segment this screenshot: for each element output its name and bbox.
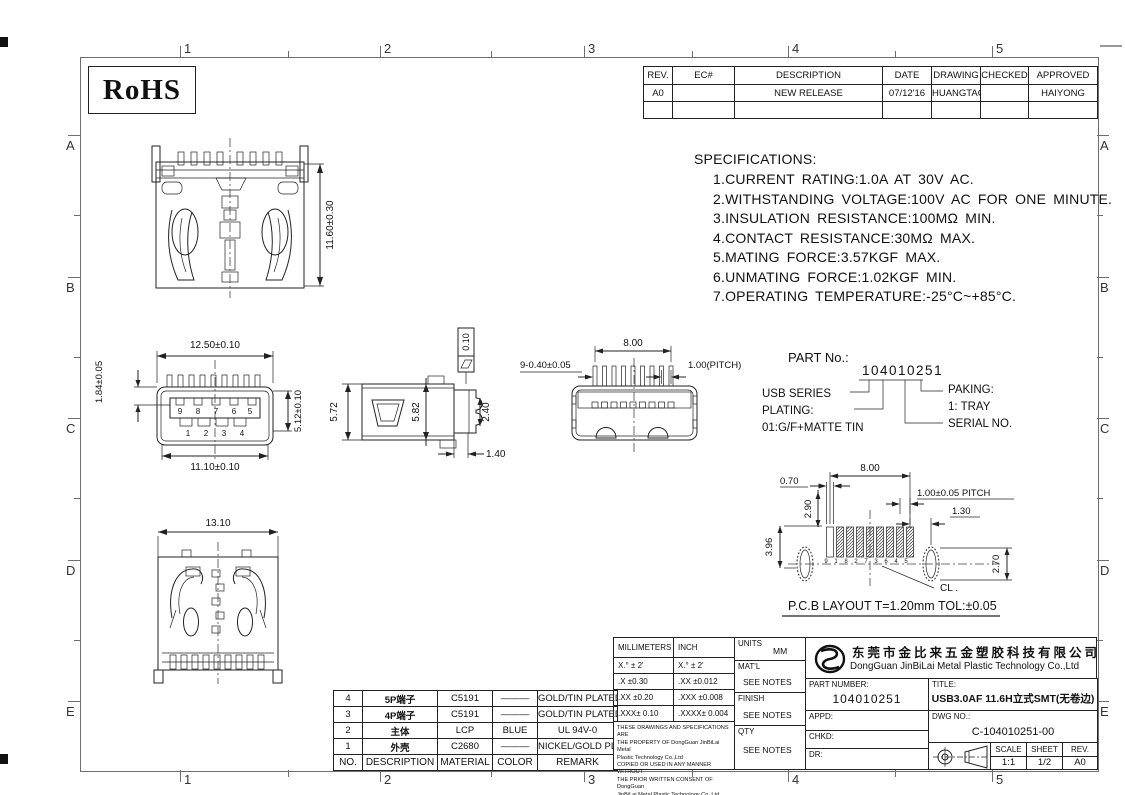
bom-remark: NICKEL/GOLD PLATED <box>538 739 618 755</box>
pcb-pin-number: 6 <box>884 559 888 565</box>
bom-color: ——— <box>493 707 538 723</box>
zone-row-a-right: A <box>1100 138 1109 153</box>
bom-color: BLUE <box>493 723 538 739</box>
tick <box>288 770 289 777</box>
scale-value-cell: 1:1 <box>990 756 1027 770</box>
rohs-label: RoHS <box>103 74 181 107</box>
side-flatness-dim: 0.10 <box>461 333 471 351</box>
bom-remark: GOLD/TIN PLATED <box>538 707 618 723</box>
approved-col-header: APPROVED <box>1029 67 1098 85</box>
mating-face-view-drawing: 9 8 7 6 5 1 2 3 4 12.50±0.10 11.10±0.10 … <box>92 330 312 475</box>
spec-item: 5.MATING FORCE:3.57KGF MAX. <box>713 248 1112 268</box>
tick <box>74 498 80 499</box>
title-cell: TITLE: USB3.0AF 11.6H立式SMT(无卷边) <box>928 678 1098 711</box>
chkd-cell: CHKD: <box>805 730 929 749</box>
spec-item: 2.WITHSTANDING VOLTAGE:100V AC FOR ONE M… <box>713 190 1112 210</box>
bom-no: 4 <box>334 691 363 707</box>
company-banner: 东莞市金比来五金塑胶科技有限公司 DongGuan JinBiLai Metal… <box>805 637 1097 679</box>
tick <box>1097 135 1109 136</box>
tick <box>895 770 896 777</box>
rev-header-cell: REV. <box>1062 742 1098 757</box>
tolerance-table: MILLIMETERS INCH X.° ± 2'X.° ± 2' .X ±0.… <box>613 637 735 722</box>
spec-item: 4.CONTACT RESISTANCE:30MΩ MAX. <box>713 229 1112 249</box>
tick <box>68 701 80 702</box>
part-no-leader-lines <box>755 345 1065 445</box>
tick <box>1097 418 1109 419</box>
pcb-130-dim: 1.30 <box>952 506 971 517</box>
zone-col-1-bottom: 1 <box>184 772 191 787</box>
date-value: 07/12'16 <box>883 85 932 102</box>
bom-header-no: NO. <box>334 755 363 771</box>
scale-value: 1:1 <box>991 757 1026 768</box>
bom-header-material: MATERIAL <box>438 755 493 771</box>
side-dim-582: 5.82 <box>411 402 422 422</box>
title-value: USB3.0AF 11.6H立式SMT(无卷边) <box>929 691 1097 706</box>
pcb-pin-number: 1 <box>834 559 838 565</box>
spec-item: 3.INSULATION RESISTANCE:100MΩ MIN. <box>713 209 1112 229</box>
company-name-cn: 东莞市金比来五金塑胶科技有限公司 <box>852 642 1094 661</box>
units-label: UNITS <box>735 638 762 648</box>
tick <box>992 770 993 782</box>
tol-cell: .XX ±0.20 <box>614 690 674 706</box>
zone-row-d-right: D <box>1100 563 1109 578</box>
tol-cell: X.° ± 2' <box>614 658 674 674</box>
specifications-title: SPECIFICATIONS: <box>694 150 817 170</box>
units-cell: UNITS MM <box>734 637 806 661</box>
tick <box>74 640 80 641</box>
zone-row-c-right: C <box>1100 421 1109 436</box>
tick <box>491 51 492 58</box>
tol-header-inch: INCH <box>674 638 735 658</box>
tol-header-mm: MILLIMETERS <box>614 638 674 658</box>
title-label: TITLE: <box>929 679 1097 689</box>
spec-item: 1.CURRENT RATING:1.0A AT 30V AC. <box>713 170 1112 190</box>
checked-col-header: CHECKED <box>981 67 1029 85</box>
corner-mark-bottom-left <box>0 754 8 764</box>
ec-value <box>673 85 735 102</box>
corner-mark-top-right <box>1100 45 1122 47</box>
bom-header-remark: REMARK <box>538 755 618 771</box>
pin-number: 2 <box>204 429 209 438</box>
corner-mark-top-left <box>0 37 8 47</box>
tick <box>68 560 80 561</box>
top-span-dim: 8.00 <box>623 338 643 349</box>
spec-item: 7.OPERATING TEMPERATURE:-25°C~+85°C. <box>713 287 1112 307</box>
drawing-value: HUANGTAO <box>932 85 981 102</box>
matl-value: SEE NOTES <box>743 677 792 687</box>
tick <box>180 46 181 58</box>
checked-value <box>981 85 1029 102</box>
finish-value: SEE NOTES <box>743 710 792 720</box>
pin-number: 6 <box>232 407 237 416</box>
matl-cell: MAT'L SEE NOTES <box>734 660 806 693</box>
qty-label: QTY <box>735 726 754 736</box>
mating-top-dim: 12.50±0.10 <box>190 340 240 351</box>
tick <box>288 51 289 58</box>
bom-header-description: DESCRIPTION <box>363 755 438 771</box>
revision-table: REV. EC# DESCRIPTION DATE DRAWING CHECKE… <box>643 66 1098 119</box>
finish-cell: FINISH SEE NOTES <box>734 692 806 726</box>
bom-header-color: COLOR <box>493 755 538 771</box>
pin-number: 8 <box>196 407 201 416</box>
tick <box>1097 357 1103 358</box>
tick <box>180 770 181 782</box>
part-number-cell: PART NUMBER: 104010251 <box>805 678 929 711</box>
tick <box>68 418 80 419</box>
zone-row-d-left: D <box>66 563 75 578</box>
description-col-header: DESCRIPTION <box>735 67 883 85</box>
pcb-pitch-dim: 1.00±0.05 PITCH <box>917 488 990 499</box>
tick <box>1097 560 1109 561</box>
bom-material: C2680 <box>438 739 493 755</box>
top-pitch-dim: 1.00(PITCH) <box>688 360 741 371</box>
front-height-dim: 11.60±0.30 <box>325 200 336 250</box>
side-view-drawing: 5.72 5.82 2.40 1.40 0.10 <box>328 320 513 468</box>
tick <box>788 770 789 782</box>
appd-label: APPD: <box>806 711 928 721</box>
tick <box>74 357 80 358</box>
tick <box>788 46 789 58</box>
tol-cell: .XX ±0.012 <box>674 674 735 690</box>
mating-right-dim: 5.12±0.10 <box>293 390 304 432</box>
finish-label: FINISH <box>735 693 764 703</box>
tick <box>895 51 896 58</box>
dwg-no-cell: DWG NO.: C-104010251-00 <box>928 710 1098 743</box>
spec-item: 6.UNMATING FORCE:1.02KGF MIN. <box>713 268 1112 288</box>
tol-cell: .XXX± 0.10 <box>614 706 674 722</box>
zone-col-5-top: 5 <box>996 41 1003 56</box>
dr-cell: DR: <box>805 748 929 770</box>
side-dim-240: 2.40 <box>481 402 492 422</box>
specifications-list: 1.CURRENT RATING:1.0A AT 30V AC. 2.WITHS… <box>713 170 1112 307</box>
pcb-span-dim: 8.00 <box>860 463 880 474</box>
tick <box>1097 640 1103 641</box>
tick <box>584 46 585 58</box>
tick <box>74 215 80 216</box>
sheet-header-cell: SHEET <box>1026 742 1063 757</box>
bom-description: 外壳 <box>363 739 438 755</box>
bom-remark: GOLD/TIN PLATED <box>538 691 618 707</box>
third-angle-projection-icon <box>931 743 991 770</box>
zone-col-4-bottom: 4 <box>792 772 799 787</box>
zone-row-a-left: A <box>66 138 75 153</box>
mating-bottom-dim: 11.10±0.10 <box>190 462 240 473</box>
tick <box>491 770 492 777</box>
chkd-label: CHKD: <box>806 731 928 741</box>
tick <box>992 46 993 58</box>
pcb-270-dim: 2.70 <box>991 555 1002 574</box>
zone-col-2-top: 2 <box>384 41 391 56</box>
pin-number: 1 <box>186 429 191 438</box>
rev-col-header: REV. <box>644 67 673 85</box>
part-number-label: PART NUMBER: <box>806 679 928 689</box>
tol-cell: .XXX ±0.008 <box>674 690 735 706</box>
sheet-value: 1/2 <box>1027 757 1062 768</box>
part-number-value: 104010251 <box>806 692 928 706</box>
zone-col-3-top: 3 <box>588 41 595 56</box>
rev-value: A0 <box>1063 757 1097 768</box>
side-dim-140: 1.40 <box>486 449 506 460</box>
scale-label: SCALE <box>991 743 1026 754</box>
back-width-dim: 13.10 <box>205 518 230 529</box>
tick <box>584 770 585 782</box>
drawing-col-header: DRAWING <box>932 67 981 85</box>
appd-cell: APPD: <box>805 710 929 731</box>
units-value: MM <box>773 646 787 656</box>
bom-material: C5191 <box>438 707 493 723</box>
scale-header-cell: SCALE <box>990 742 1027 757</box>
zone-col-2-bottom: 2 <box>384 772 391 787</box>
matl-label: MAT'L <box>735 661 760 671</box>
tick <box>380 46 381 58</box>
ec-col-header: EC# <box>673 67 735 85</box>
bom-color: ——— <box>493 691 538 707</box>
pcb-layout-drawing: 8.00 0.70 2.90 1.00±0.05 PITCH 1.30 3.96… <box>762 458 1027 633</box>
zone-row-e-right: E <box>1100 704 1109 719</box>
tol-cell: .X ±0.30 <box>614 674 674 690</box>
top-view-drawing: 8.00 9-0.40±0.05 1.00(PITCH) <box>518 330 758 462</box>
tick <box>380 770 381 782</box>
rohs-badge: RoHS <box>88 66 196 114</box>
tick <box>68 135 80 136</box>
pcb-caption: P.C.B LAYOUT T=1.20mm TOL:±0.05 <box>788 599 997 613</box>
tick <box>1097 498 1103 499</box>
pin-number: 9 <box>178 407 183 416</box>
dr-label: DR: <box>806 749 928 759</box>
date-col-header: DATE <box>883 67 932 85</box>
front-view-drawing: 11.60±0.30 <box>138 136 343 304</box>
zone-row-c-left: C <box>66 421 75 436</box>
approved-value: HAIYONG <box>1029 85 1098 102</box>
sheet-label: SHEET <box>1027 743 1062 754</box>
qty-cell: QTY SEE NOTES <box>734 725 806 770</box>
zone-col-3-bottom: 3 <box>588 772 595 787</box>
bom-remark: UL 94V-0 <box>538 723 618 739</box>
rev-value-cell: A0 <box>1062 756 1098 770</box>
zone-row-b-left: B <box>66 280 75 295</box>
zone-col-1-top: 1 <box>184 41 191 56</box>
tol-cell: X.° ± 2' <box>674 658 735 674</box>
top-pins-dim: 9-0.40±0.05 <box>520 360 571 371</box>
drawing-sheet: 1 2 3 4 5 1 2 3 4 5 A B C D E A B C D E <box>0 0 1125 795</box>
back-view-drawing: 13.10 <box>138 510 348 690</box>
bom-material: LCP <box>438 723 493 739</box>
bom-no: 2 <box>334 723 363 739</box>
side-dim-572: 5.72 <box>329 402 340 422</box>
company-logo <box>812 642 848 676</box>
tick <box>68 277 80 278</box>
projection-symbol-cell <box>928 742 991 770</box>
bom-no: 3 <box>334 707 363 723</box>
pcb-396-dim: 3.96 <box>764 538 775 557</box>
bom-color: ——— <box>493 739 538 755</box>
rev-value: A0 <box>644 85 673 102</box>
zone-row-e-left: E <box>66 704 75 719</box>
company-name-en: DongGuan JinBiLai Metal Plastic Technolo… <box>850 661 1096 672</box>
sheet-value-cell: 1/2 <box>1026 756 1063 770</box>
bom-description: 4P端子 <box>363 707 438 723</box>
material-table: 4 5P端子 C5191 ——— GOLD/TIN PLATED 3 4P端子 … <box>333 690 618 771</box>
proprietary-notice: THESE DRAWINGS AND SPECIFICATIONS ARETHE… <box>613 721 735 770</box>
pin-number: 3 <box>222 429 227 438</box>
qty-value: SEE NOTES <box>743 745 792 755</box>
pcb-290-dim: 2.90 <box>803 500 814 519</box>
tick <box>692 51 693 58</box>
mating-left-dim: 1.84±0.05 <box>94 361 105 403</box>
bom-description: 5P端子 <box>363 691 438 707</box>
dwg-no-label-text: DWG NO.: <box>929 711 970 721</box>
rev-label: REV. <box>1063 743 1097 754</box>
zone-col-5-bottom: 5 <box>996 772 1003 787</box>
pin-number: 5 <box>248 407 253 416</box>
pin-number: 7 <box>214 407 219 416</box>
bom-description: 主体 <box>363 723 438 739</box>
pcb-pin-number: 7 <box>864 559 868 565</box>
dwg-no-value: C-104010251-00 <box>929 726 1097 738</box>
pin-number: 4 <box>240 429 245 438</box>
bom-no: 1 <box>334 739 363 755</box>
zone-col-4-top: 4 <box>792 41 799 56</box>
tol-cell: .XXXX± 0.004 <box>674 706 735 722</box>
pcb-pad-width-dim: 0.70 <box>780 476 799 487</box>
bom-material: C5191 <box>438 691 493 707</box>
description-value: NEW RELEASE <box>735 85 883 102</box>
tick <box>1097 701 1109 702</box>
pcb-centerline-label: CL . <box>940 583 958 594</box>
